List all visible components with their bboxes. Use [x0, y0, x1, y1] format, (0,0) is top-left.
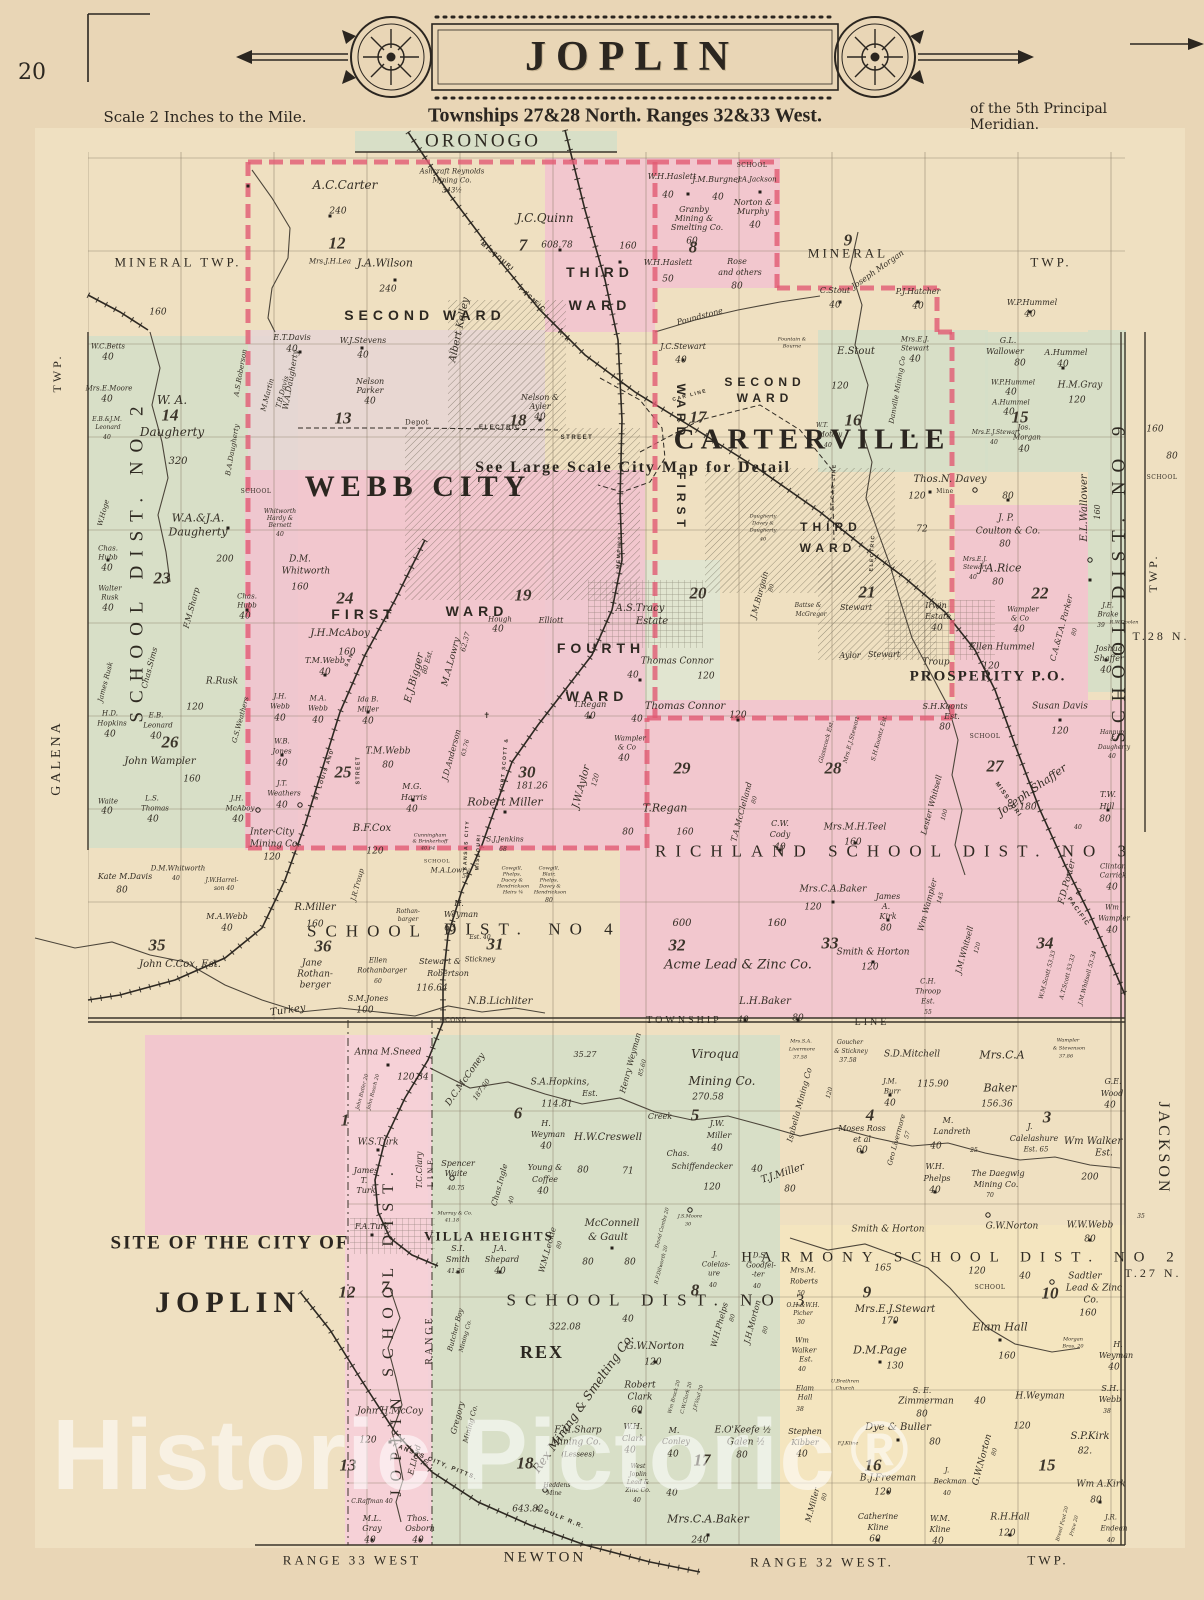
map-label: Daugherty [750, 529, 777, 534]
map-label: T.W. [1100, 791, 1116, 799]
map-label: 320 [168, 457, 187, 467]
map-label: Whitworth [282, 568, 330, 577]
map-label: Creek [648, 1113, 672, 1121]
map-label: 41.26 [447, 1269, 464, 1275]
map-label: and others [718, 269, 761, 277]
map-label: 40 [1106, 927, 1117, 936]
map-label: G.W.Norton [986, 1223, 1039, 1232]
map-label: W.A.&J.A. [172, 513, 225, 524]
map-label: NO 4 [548, 921, 621, 938]
map-label: STREET [357, 756, 362, 785]
map-label: Livermore [789, 1048, 815, 1053]
map-label: See Large Scale City Map for Detail [475, 460, 791, 476]
map-label: 160 [767, 919, 786, 929]
map-label: WEBB CITY [305, 472, 532, 502]
map-label: 10 [1042, 1285, 1059, 1302]
map-label: SCHOOL [1147, 475, 1178, 481]
map-label: Mining Co. [974, 1181, 1019, 1189]
map-label: berger [300, 982, 331, 991]
map-label: & Gault [588, 1233, 628, 1243]
map-label: 40 [276, 760, 287, 769]
map-label: Mining & [675, 215, 713, 223]
map-label: Elam [796, 1386, 814, 1393]
map-label: W.P.Hummel [1007, 299, 1057, 307]
map-label: 29 [674, 760, 691, 777]
map-label: W.H.Haslett [648, 173, 696, 181]
map-label: 40 [622, 1316, 633, 1325]
map-label: Walter [98, 586, 121, 593]
map-label: 120 [974, 942, 983, 955]
map-label: Rothan- [396, 909, 420, 915]
map-label: 120 [982, 663, 999, 672]
map-label: M.Martin [260, 378, 275, 412]
map-label: 80 [992, 579, 1003, 588]
map-label: 4 [866, 1107, 875, 1124]
map-label: RANGE 33 WEST [283, 1554, 421, 1567]
map-label: J.A.Rice [979, 563, 1022, 574]
map-label: ELECTRIC [870, 534, 877, 571]
map-label: 40 [508, 1196, 516, 1205]
map-label: LINE [427, 1157, 435, 1187]
map-label: Leonard [143, 723, 173, 730]
map-label: Ashcraft Reynolds [420, 169, 485, 176]
map-label: Hendrickson [534, 891, 566, 896]
map-label: 13 [335, 410, 352, 427]
map-label: Murray & Co. [438, 1212, 473, 1217]
map-label: Wm Wampler [917, 878, 939, 933]
map-label: 100 [941, 809, 950, 822]
map-label: Thos.N. Davey [913, 475, 986, 485]
map-label: Granby [679, 206, 709, 214]
map-label: & Stickney [834, 1049, 868, 1055]
map-label: 40 [709, 1283, 717, 1289]
map-label: 80 [624, 1259, 635, 1268]
map-label: Young & [528, 1164, 563, 1172]
map-label: R.F.Dilworth 20 [654, 1245, 669, 1285]
map-label: KANSAS CITY [463, 820, 471, 871]
map-label: G.W.Norton [626, 1342, 685, 1352]
map-label: Robertson [427, 970, 469, 978]
map-label: FORT SCOTT & [500, 737, 510, 792]
map-label: T.27 N. [1124, 1267, 1181, 1279]
map-label: 40 [990, 440, 998, 446]
map-label: 40 [618, 755, 629, 764]
map-label: W.S.Turk [358, 1139, 399, 1148]
map-label: J. [1027, 1123, 1032, 1131]
map-label: Stickney [465, 957, 496, 964]
map-label: 80 [545, 898, 553, 904]
map-label: The Daegwig [971, 1170, 1024, 1178]
map-label: S.J.Jenkins [486, 837, 523, 844]
map-label: Morgan [1063, 1338, 1083, 1343]
map-label: McGregor [795, 612, 826, 618]
map-label: Waite [445, 1170, 468, 1178]
map-label: D.M.Whitworth [151, 866, 206, 873]
map-label: 160 [844, 839, 861, 848]
map-label: 40 [537, 1188, 548, 1197]
map-label: Hough [488, 617, 512, 624]
map-label: Turk [356, 1187, 375, 1195]
map-label: Shepard [485, 1256, 519, 1264]
map-label: TWP. [51, 354, 63, 393]
map-label: 160 [183, 776, 200, 785]
map-label: SECOND [724, 376, 805, 388]
map-label: 40 [239, 613, 250, 622]
map-label: Mrs.M. [790, 1268, 816, 1275]
map-label: MISSOURI [476, 834, 483, 871]
map-label: Schiffendecker [672, 1163, 733, 1171]
map-label: 25 [970, 1148, 978, 1154]
map-label: Throop [915, 989, 940, 996]
map-label: S.M.Jones [348, 995, 389, 1003]
map-label: A.C.Carter [313, 179, 378, 191]
map-label: 1 [341, 1112, 350, 1129]
map-label: 40 [1005, 389, 1016, 398]
map-label: Murphy [737, 208, 769, 216]
map-label: 55 [924, 1010, 932, 1016]
map-label: 40 [276, 802, 287, 811]
map-label: 240 [691, 1537, 708, 1546]
map-label: 120 [366, 848, 383, 857]
map-label: 120 [804, 904, 821, 913]
map-label: FIRST [675, 472, 687, 532]
map-label: B.A.Daugherty [225, 424, 241, 477]
map-label: 115.90 [917, 1081, 949, 1090]
map-label: Picher [793, 1311, 813, 1317]
map-label: 7 [381, 1279, 390, 1296]
map-label: 40 [534, 414, 545, 423]
map-label: Mining Co. [689, 1075, 756, 1087]
map-label: 16 [845, 412, 862, 429]
map-label: T.J.Miller [760, 1162, 806, 1186]
map-label: 40 [150, 733, 161, 742]
map-label: Jones [272, 749, 291, 756]
map-label: 120 [831, 383, 848, 392]
map-label: 60 [869, 1536, 880, 1545]
map-label: Daugherty [140, 426, 204, 438]
map-label: C.W. [771, 820, 789, 828]
map-label: J.M.Burgner [692, 176, 742, 184]
map-label: SECOND WARD [344, 308, 506, 322]
map-label: 80 [792, 1015, 803, 1024]
map-label: 120 [697, 673, 714, 682]
map-label: 120 [729, 712, 746, 721]
map-label: R.W.Doolen [1109, 621, 1138, 626]
map-label: 80 [382, 762, 393, 771]
map-label: Mining Co. [250, 841, 300, 850]
map-label: H. [454, 900, 464, 908]
map-label: D.M.Page [853, 1345, 907, 1356]
map-label: 40 [1108, 754, 1116, 760]
map-label: 160 [1079, 1310, 1096, 1319]
map-label: 58 [462, 874, 470, 880]
map-label: Glasscock Est. [818, 720, 835, 764]
map-label: 40 [1108, 1364, 1119, 1373]
map-label: Elam Hall [972, 1322, 1027, 1333]
map-label: R.R. [557, 330, 574, 347]
map-label: MISSOURI [479, 241, 515, 272]
map-label: J.H. [231, 796, 244, 803]
map-label: 37.58 [839, 1058, 856, 1064]
map-label: 40 [753, 1284, 761, 1290]
map-label: J.R.Troup [350, 868, 365, 902]
map-label: MEMPHIS [617, 535, 624, 569]
map-label: M.A.Webb [206, 913, 248, 921]
map-label: 80 [1002, 493, 1013, 502]
map-label: 63 [444, 925, 455, 934]
map-label: J.W. [710, 1120, 725, 1128]
map-label: W.H. [926, 1163, 945, 1171]
map-label: E.Stout [837, 347, 875, 357]
map-label: 5 [691, 1107, 700, 1124]
map-label: Norton & [734, 199, 773, 207]
map-label: 120 [1068, 397, 1085, 406]
map-label: JOPLIN [155, 1288, 301, 1318]
map-label: Rothanbarger [357, 968, 406, 975]
map-label: Phelps [923, 1175, 950, 1183]
map-label: 60 [374, 979, 382, 985]
map-label: M.L. [363, 1515, 382, 1523]
map-label: 40 [406, 806, 417, 815]
map-label: Osborn [405, 1525, 435, 1533]
map-label: 41.18 [445, 1219, 459, 1224]
map-label: B.F.Cox [353, 824, 391, 834]
map-label: Weyman [531, 1131, 565, 1139]
map-label: Hill [1100, 803, 1115, 811]
map-label: Bros. 20 [1062, 1345, 1083, 1350]
map-label: 130 [886, 1363, 903, 1372]
map-label: Wm [1105, 905, 1119, 912]
map-label: David Combs 20 [655, 1207, 671, 1248]
map-label: PACIFIC [517, 286, 546, 313]
map-label: Acme Lead & Zinc Co. [664, 959, 812, 972]
map-label: SCHOOL DIST. NO 3 [507, 1292, 814, 1309]
map-label: Smith & Horton [836, 949, 909, 958]
map-label: 160 [676, 829, 693, 838]
map-label: 40 [711, 1145, 722, 1154]
map-label: Wampler [1057, 1039, 1080, 1044]
map-label: J.C.Stewart [660, 343, 706, 351]
map-label: J.C.Quinn [516, 212, 573, 224]
map-label: Isabella Mining Co [786, 1067, 814, 1143]
map-label: 19 [515, 587, 532, 604]
map-label: 40 [362, 718, 373, 727]
map-label: 25 [335, 764, 352, 781]
map-label: T.Regan [643, 803, 688, 814]
map-label: 170 [881, 1318, 898, 1327]
map-label: Elliott [539, 617, 564, 625]
map-label: 40 [101, 396, 112, 405]
map-label: Moses Ross [838, 1125, 886, 1133]
map-label: Leonard [95, 425, 120, 431]
map-label: 160 [149, 309, 166, 318]
map-label: Smelting Co. [671, 224, 723, 232]
map-label: 80 [577, 1167, 588, 1176]
map-label: Rose [727, 258, 747, 266]
map-label: 71 [622, 1168, 633, 1177]
map-label: Mrs.S.A. [790, 1040, 812, 1045]
map-label: H.W.Creswell [574, 1133, 642, 1143]
map-label: 40 [932, 1538, 943, 1547]
map-label: Troup [922, 659, 949, 668]
map-label: 40 [584, 713, 595, 722]
map-label: Webb [270, 704, 290, 711]
map-label: 40 [760, 538, 766, 543]
map-label: 40 [798, 1367, 806, 1373]
map-label: 63.76 [461, 739, 471, 757]
map-label: SCHOOL DIST. [381, 1163, 397, 1377]
map-label: A. [882, 903, 890, 911]
map-label: H.M.Gray [1058, 382, 1103, 391]
map-label: RANGE [425, 1315, 435, 1364]
map-label: Co. [1083, 1297, 1098, 1306]
map-label: J.T. [277, 781, 287, 788]
map-label: 40 [1013, 626, 1024, 635]
map-label: 37.58 [793, 1056, 807, 1061]
map-label: 40 [1003, 409, 1014, 418]
map-label: 40 [824, 443, 832, 449]
map-label: J.A. [493, 1245, 506, 1253]
map-label: E.B. [149, 713, 164, 720]
map-label: 120 [703, 1184, 720, 1193]
map-label: JACKSON [1155, 1101, 1171, 1194]
map-label: S. E. [913, 1387, 932, 1395]
map-label: Price 20 [1070, 1515, 1080, 1537]
map-label: WARD [675, 384, 687, 441]
map-label: Walker [792, 1348, 817, 1355]
map-label: Bourne [783, 345, 801, 350]
map-label: Weyman [444, 911, 478, 919]
map-label: 8 [691, 1282, 700, 1299]
map-label: Smith & Horton [851, 1226, 924, 1235]
map-label: NEWTON [504, 1551, 587, 1566]
plat-map-page: 20 JOPLIN Scale 2 Inches to the Mile. To… [0, 0, 1204, 1600]
map-label: Estate [636, 617, 668, 627]
map-label: W.M. [930, 1515, 950, 1523]
map-label: Est. 40 [469, 935, 490, 941]
map-label: D.S. [753, 1253, 767, 1260]
map-label: MINERAL TWP. [115, 256, 242, 269]
map-label: Morgan [1013, 435, 1041, 442]
map-label: RANGE 32 WEST. [750, 1556, 894, 1569]
map-label: Chas. [667, 1150, 690, 1158]
map-label: Anna M.Sneed [355, 1049, 422, 1058]
map-label: VILLA HEIGHTS [424, 1230, 554, 1243]
map-label: Wampler [1098, 916, 1130, 923]
map-label: SCHOOL [737, 163, 768, 169]
map-label: J.E. [1102, 603, 1114, 610]
map-label: 80 [1084, 1236, 1095, 1245]
map-label: Chas. [237, 594, 257, 601]
map-label: 120 [826, 1087, 835, 1100]
map-label: Mrs.E.J.Stewart [855, 1305, 935, 1315]
map-label: 60 [856, 1147, 867, 1156]
map-label: TWP. [1147, 554, 1159, 593]
map-label: 343½ [442, 188, 462, 195]
map-label: 160 [306, 921, 323, 930]
map-label: 120 [998, 1530, 1015, 1539]
map-label: & [1110, 737, 1115, 743]
map-label: J.M.Whitsell 53.34 [1078, 950, 1098, 1005]
map-label: TOWNSHIP [646, 1016, 721, 1026]
map-label: 9 [844, 232, 853, 249]
map-label: barger [398, 917, 419, 923]
map-label: REX [520, 1343, 564, 1361]
map-label: 100 [356, 1007, 373, 1016]
map-label: Estate [925, 613, 951, 621]
map-label: SCHOOL [975, 1285, 1006, 1291]
map-label: WARD [737, 392, 794, 404]
map-label: 40 [221, 925, 232, 934]
map-label: Chas. [98, 546, 118, 553]
map-label: E.T.Davis [273, 334, 310, 342]
map-label: 72 [916, 526, 927, 535]
map-label: 40 [1106, 884, 1117, 893]
map-label: T. [361, 1177, 368, 1185]
map-label: Calelashure [1010, 1135, 1058, 1143]
map-label: Nelson [356, 378, 384, 386]
map-label: 40 [751, 1166, 762, 1175]
map-label: 40 [492, 626, 503, 635]
map-label: W.C.Betts [91, 344, 125, 351]
map-label: J.A.Wilson [357, 258, 413, 269]
map-label: 116.64 [416, 985, 448, 994]
map-label: TWP. [1030, 256, 1071, 269]
map-label: R.H.Hall [990, 1514, 1029, 1523]
map-label: 40 [829, 302, 840, 311]
map-label: S.A.Hopkins, [531, 1079, 590, 1088]
map-label: T.A.McClelland [730, 781, 754, 842]
map-label: Mining Co. [432, 178, 471, 185]
map-label: WARD [800, 542, 857, 554]
map-label: 80 [1071, 628, 1079, 637]
map-label: J.M.Burgain [750, 571, 770, 620]
map-label: 40 [909, 356, 920, 365]
map-label: 40 [172, 876, 180, 882]
map-label: Burr [884, 1089, 900, 1096]
map-label: Mrs.C.A.Baker [667, 1514, 749, 1525]
map-label: 80 [556, 1241, 564, 1250]
map-label: J.W.Harrel- [206, 878, 239, 884]
map-label: Mrs.C.A.Baker [800, 886, 867, 895]
map-label: Thomas Connor [641, 658, 713, 667]
map-label: Carrick [1100, 873, 1127, 880]
map-label: LINE [855, 1018, 890, 1028]
map-label: T.M.Webb [366, 748, 411, 757]
map-label: 40 [103, 435, 111, 441]
map-label: 50 [662, 276, 673, 285]
map-label: 80 [784, 1186, 795, 1195]
map-label: J.W.Aylor [571, 764, 592, 810]
map-label: Smith [446, 1256, 470, 1264]
map-label: Stewart [868, 651, 900, 659]
map-label: 14 [162, 407, 179, 424]
map-label: 120 [908, 493, 925, 502]
map-label: Cody [770, 831, 791, 839]
map-label: O.H.&W.H. [786, 1303, 819, 1309]
map-label: 80 [768, 584, 776, 593]
map-label: 30 [519, 764, 536, 781]
map-label: 40 [884, 1100, 895, 1109]
map-label: Catherine [858, 1513, 898, 1521]
map-label: Weyman [1099, 1352, 1133, 1360]
map-label: 80 [999, 541, 1010, 550]
map-label: Est. [1095, 1150, 1113, 1159]
map-label: D.C.McConey [445, 1052, 488, 1108]
map-label: Fountain & [778, 338, 807, 343]
map-label: 40 [147, 816, 158, 825]
map-label: L.S. [145, 796, 159, 803]
